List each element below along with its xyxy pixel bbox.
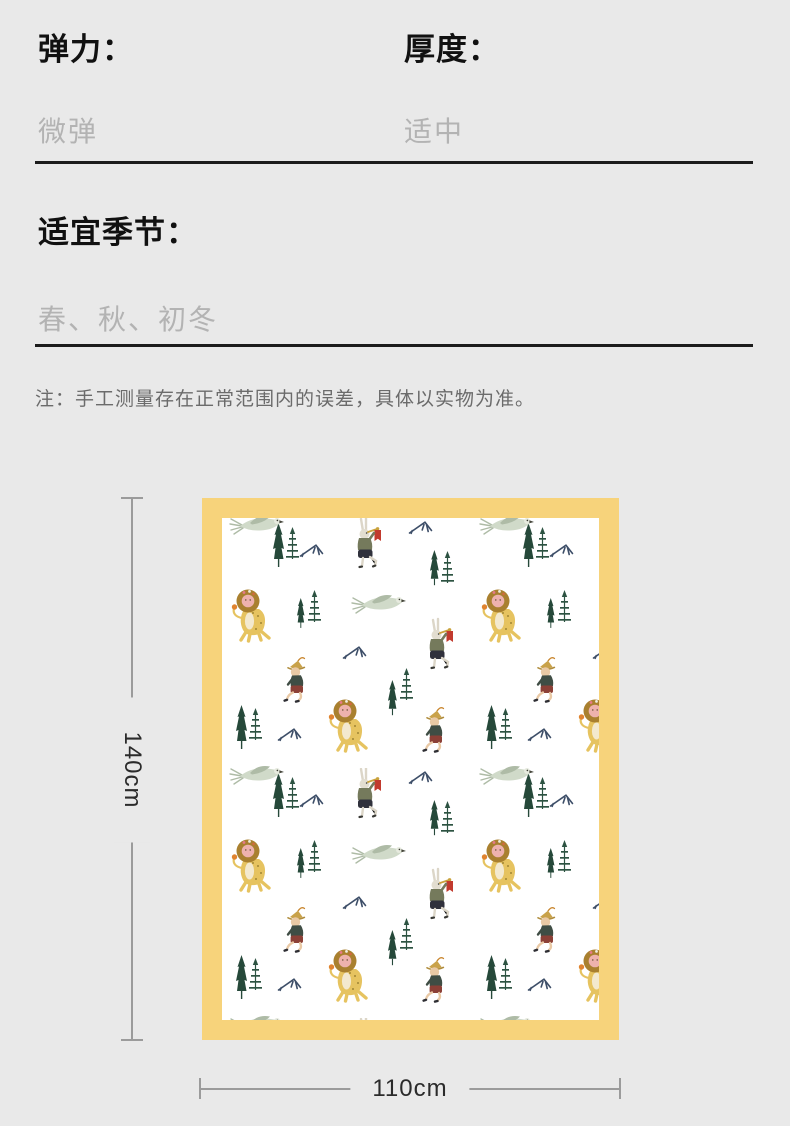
height-dimension-label: 140cm bbox=[114, 697, 150, 842]
blanket-pattern-art bbox=[222, 518, 599, 1020]
spec-value-season: 春、秋、初冬 bbox=[38, 298, 218, 338]
spec-label-thickness: 厚度： bbox=[404, 24, 500, 69]
divider bbox=[35, 344, 753, 347]
blanket-pattern bbox=[222, 518, 599, 1020]
divider bbox=[35, 161, 753, 164]
width-dimension-cap-left bbox=[199, 1078, 201, 1099]
measurement-note: 注：手工测量存在正常范围内的误差，具体以实物为准。 bbox=[35, 384, 535, 411]
product-detail-page: 弹力： 厚度： 微弹 适中 适宜季节： 春、秋、初冬 注：手工测量存在正常范围内… bbox=[0, 0, 790, 1126]
spec-value-elasticity: 微弹 bbox=[38, 110, 98, 150]
height-dimension-cap-bottom bbox=[121, 1039, 143, 1041]
spec-value-thickness: 适中 bbox=[404, 110, 464, 150]
spec-label-elasticity: 弹力： bbox=[38, 24, 134, 69]
width-dimension-label: 110cm bbox=[350, 1073, 469, 1105]
height-dimension-cap-top bbox=[121, 497, 143, 499]
blanket-preview bbox=[202, 498, 619, 1040]
spec-label-season: 适宜季节： bbox=[38, 207, 198, 252]
width-dimension-cap-right bbox=[619, 1078, 621, 1099]
